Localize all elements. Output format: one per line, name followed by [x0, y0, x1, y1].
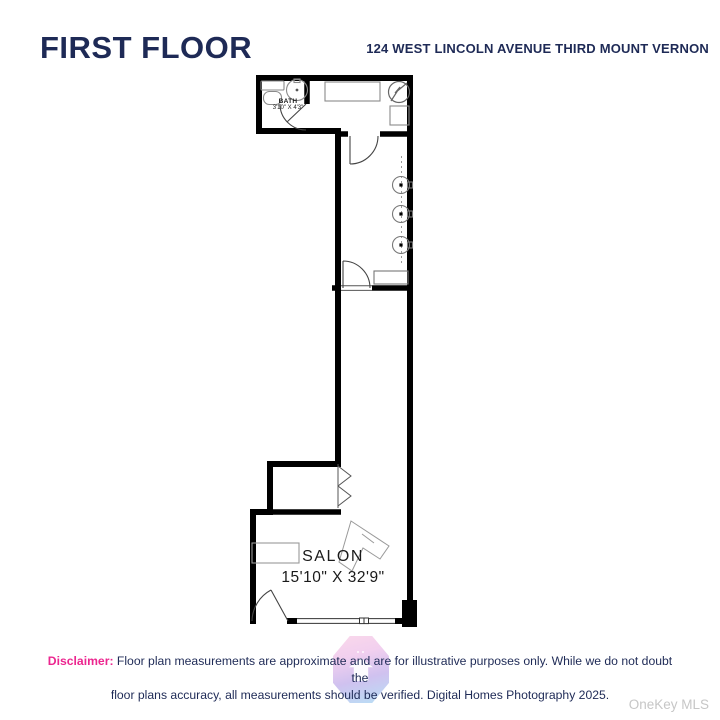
cabinet-icon [390, 106, 409, 125]
disclaimer-line2: floor plans accuracy, all measurements s… [40, 687, 680, 704]
floorplan-drawing [0, 0, 720, 720]
mls-watermark: OneKey MLS [629, 697, 709, 712]
salon-room-name: SALON [258, 548, 408, 566]
bath-room-label: BATH 3'10" X 4'3" [260, 98, 316, 111]
opening-threshold [341, 286, 372, 291]
bifold-door-icon [338, 464, 351, 508]
outer-walls [253, 78, 410, 621]
corridor-bottom-door-icon [343, 261, 370, 288]
floorplan-page: FIRST FLOOR 124 WEST LINCOLN AVENUE THIR… [0, 0, 720, 720]
wall-pier [402, 600, 417, 627]
corridor-top-door-icon [350, 136, 378, 164]
step-icon [374, 271, 408, 284]
bath-room-dimensions: 3'10" X 4'3" [260, 105, 316, 111]
counter-icon [325, 82, 380, 101]
salon-door-icon [252, 590, 288, 621]
salon-room-label: SALON 15'10" X 32'9" [258, 548, 408, 587]
utility-circle-icon [389, 82, 410, 103]
disclaimer-line1: Floor plan measurements are approximate … [117, 654, 672, 685]
disclaimer-text: Disclaimer: Floor plan measurements are … [40, 653, 680, 704]
disclaimer-label: Disclaimer: [48, 654, 114, 668]
salon-room-dimensions: 15'10" X 32'9" [258, 569, 408, 587]
shampoo-station-icon [393, 177, 413, 254]
bath-room-name: BATH [260, 98, 316, 105]
